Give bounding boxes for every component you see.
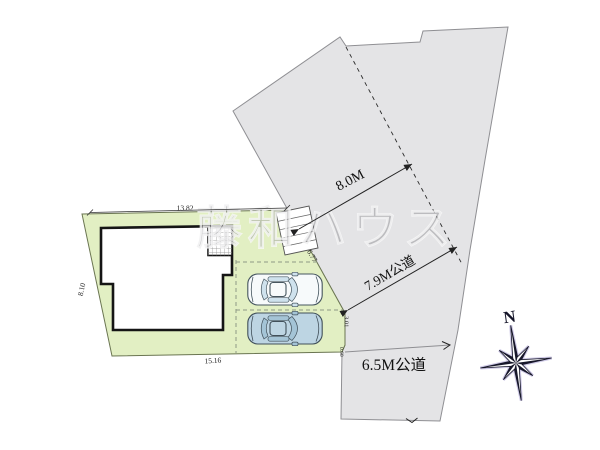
dim-bottom-label: 15.16	[204, 356, 222, 366]
dim-corner-label: 0.60	[338, 347, 344, 357]
car2-mirror-icon	[292, 342, 298, 346]
site-plan-page: 藤和ハウス 13.82 8.10 15.16 6.77 3.01 0.60 8.…	[0, 0, 600, 450]
car1-mirror-icon	[292, 303, 298, 307]
car-top-view-1	[248, 272, 322, 306]
car2-mirror-icon	[292, 311, 298, 315]
car-top-view-2	[248, 311, 322, 345]
dim-top-label: 13.82	[177, 204, 194, 213]
road-label-65m: 6.5M公道	[362, 356, 426, 374]
dim-right-label: 3.01	[343, 316, 350, 327]
car1-mirror-icon	[292, 272, 298, 276]
dim-left-label: 8.10	[76, 282, 88, 297]
site-plan-drawing: 藤和ハウス 13.82 8.10 15.16 6.77 3.01 0.60 8.…	[0, 0, 600, 450]
north-icon: N	[502, 307, 518, 328]
compass-rose: N	[473, 303, 557, 406]
compass-star-shading	[475, 320, 557, 405]
watermark-text: 藤和ハウス	[196, 203, 456, 254]
